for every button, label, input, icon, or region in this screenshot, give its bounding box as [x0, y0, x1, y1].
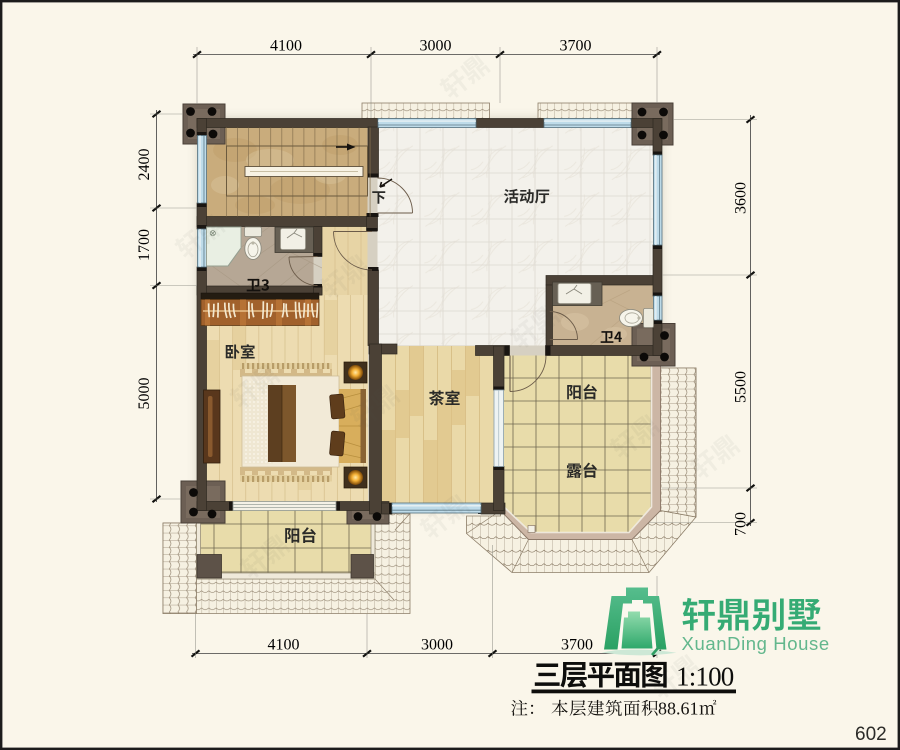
svg-text:1700: 1700	[136, 229, 153, 261]
svg-text:2400: 2400	[136, 149, 153, 181]
svg-text:88.61: 88.61	[658, 699, 699, 719]
svg-text:3000: 3000	[421, 637, 453, 654]
svg-text:3000: 3000	[420, 38, 452, 55]
svg-text:3700: 3700	[560, 38, 592, 55]
svg-text:700: 700	[733, 512, 750, 536]
svg-text:1:100: 1:100	[676, 662, 734, 692]
svg-text:602: 602	[855, 724, 887, 745]
svg-text:3600: 3600	[733, 182, 750, 214]
svg-text:XuanDing House: XuanDing House	[682, 633, 830, 654]
svg-text:5000: 5000	[136, 378, 153, 410]
svg-text:5500: 5500	[733, 371, 750, 403]
svg-text:3700: 3700	[561, 637, 593, 654]
svg-text:4100: 4100	[268, 637, 300, 654]
svg-text:4100: 4100	[270, 38, 302, 55]
